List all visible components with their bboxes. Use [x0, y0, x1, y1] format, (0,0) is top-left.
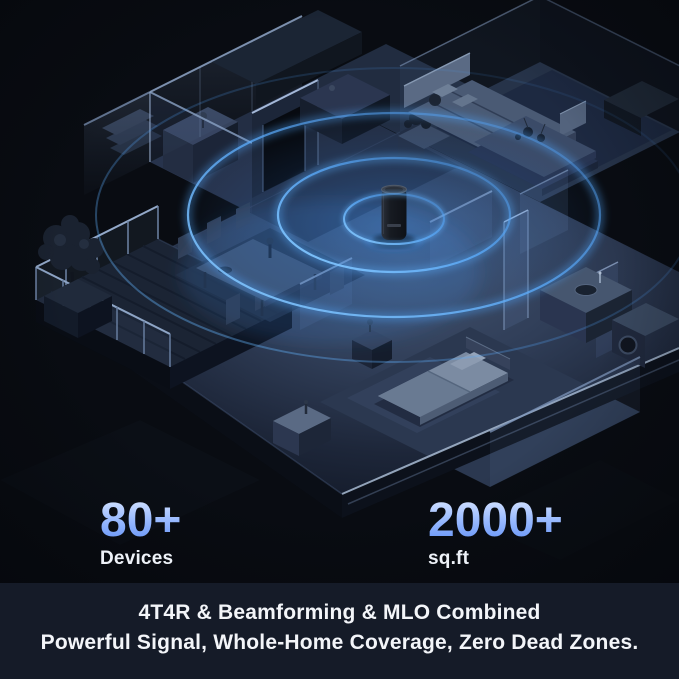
stat-coverage-value: 2000+	[428, 497, 563, 545]
stat-coverage-label: sq.ft	[428, 548, 563, 570]
caption-line-2: Powerful Signal, Whole-Home Coverage, Ze…	[41, 628, 639, 658]
stat-devices-value: 80+	[100, 497, 181, 545]
stat-devices: 80+ Devices	[100, 497, 181, 570]
stat-devices-label: Devices	[100, 548, 181, 570]
stat-coverage: 2000+ sq.ft	[428, 497, 563, 570]
caption-line-1: 4T4R & Beamforming & MLO Combined	[138, 598, 540, 628]
product-marketing-image: 80+ Devices 2000+ sq.ft 4T4R & Beamformi…	[0, 0, 679, 679]
caption-band: 4T4R & Beamforming & MLO Combined Powerf…	[0, 583, 679, 679]
